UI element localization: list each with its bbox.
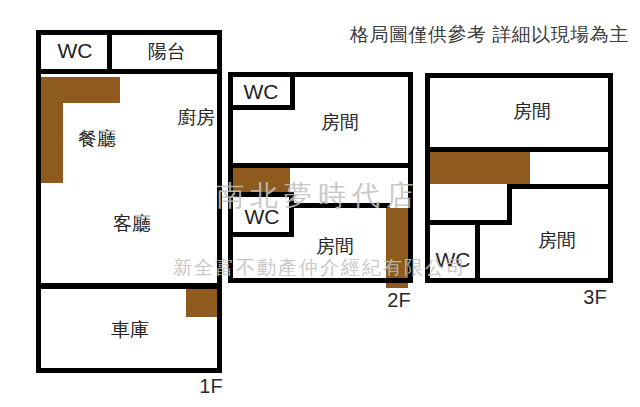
floorplan-canvas: 格局圖僅供參考 詳細以現場為主 WC 陽台 廚房 餐廳 客廳 車庫 1F WC xyxy=(0,0,640,407)
room-label-dining: 餐廳 xyxy=(78,126,116,152)
floorplan-1f: WC 陽台 廚房 餐廳 客廳 車庫 xyxy=(36,30,222,373)
wall xyxy=(233,163,408,168)
wall xyxy=(430,220,512,225)
floor-label-2f: 2F xyxy=(387,289,410,312)
wall xyxy=(233,232,294,237)
stairs-area xyxy=(41,77,63,183)
disclaimer-text: 格局圖僅供參考 詳細以現場為主 xyxy=(350,22,629,48)
wall xyxy=(41,69,217,74)
wall xyxy=(430,147,608,152)
room-label-garage: 車庫 xyxy=(111,317,149,343)
wall xyxy=(510,184,608,189)
room-label-kitchen: 廚房 xyxy=(177,105,215,131)
room-label-room-top: 房間 xyxy=(513,99,551,125)
room-label-room-top: 房間 xyxy=(321,110,359,136)
wall xyxy=(107,35,112,69)
wall xyxy=(475,225,480,278)
stairs-area xyxy=(430,152,530,184)
floor-label-3f: 3F xyxy=(583,286,606,309)
floorplan-3f: 房間 WC 房間 xyxy=(425,73,613,283)
room-label-living: 客廳 xyxy=(113,211,151,237)
watermark-company-name: 新全富不動產仲介經紀有限公司 xyxy=(173,255,467,281)
room-label-wc: WC xyxy=(58,39,93,63)
room-label-room-bottom: 房間 xyxy=(538,228,576,254)
wall xyxy=(507,184,512,225)
room-label-wc-top: WC xyxy=(244,80,279,104)
watermark-store-name: 南北夢時代店 xyxy=(216,177,420,215)
floor-label-1f: 1F xyxy=(199,375,222,398)
wall xyxy=(41,283,217,289)
room-label-balcony: 陽台 xyxy=(148,39,186,65)
stairs-area xyxy=(186,286,217,317)
wall xyxy=(233,105,295,110)
